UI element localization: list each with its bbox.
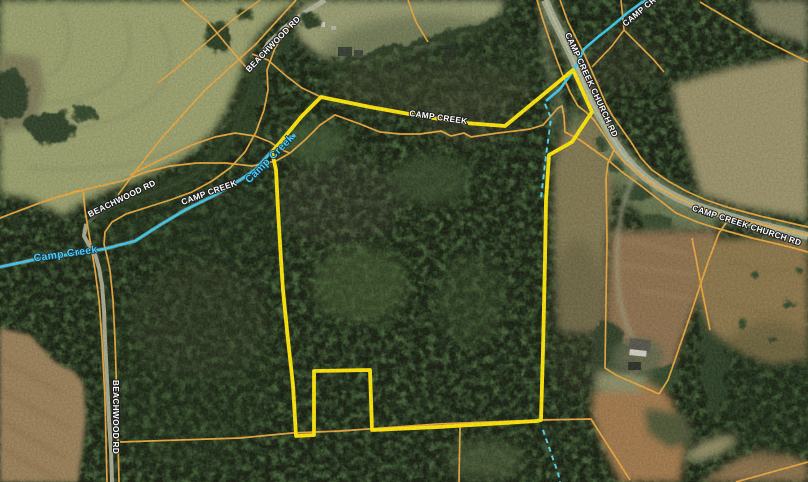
svg-text:BEACHWOOD RD: BEACHWOOD RD xyxy=(111,380,121,454)
